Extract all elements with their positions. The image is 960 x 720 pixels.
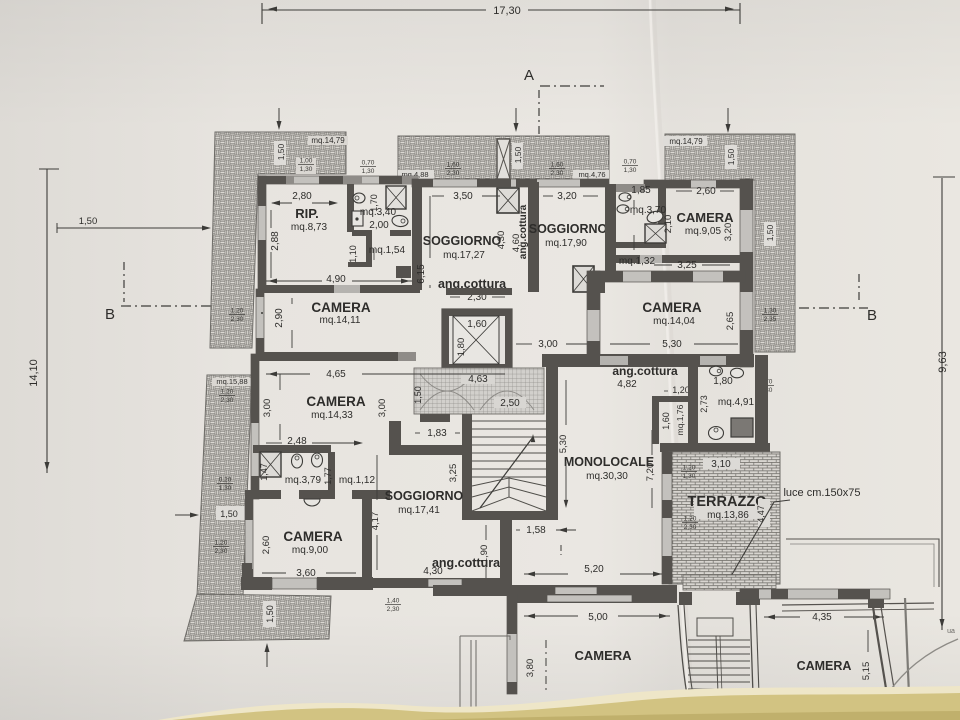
- svg-text:ang.cottura: ang.cottura: [612, 364, 678, 378]
- svg-text:B: B: [105, 306, 115, 323]
- svg-text:mq.13,86: mq.13,86: [707, 510, 749, 521]
- svg-text:mq.9,05: mq.9,05: [685, 226, 722, 237]
- svg-text:5,30: 5,30: [558, 435, 569, 454]
- svg-text:CAMERA: CAMERA: [306, 394, 365, 409]
- svg-text:1,90: 1,90: [479, 545, 490, 564]
- svg-text:1,30: 1,30: [300, 166, 313, 173]
- svg-text:luce cm.150x75: luce cm.150x75: [783, 487, 860, 499]
- svg-text:1,80: 1,80: [456, 338, 467, 357]
- svg-text:mq.3,79: mq.3,79: [285, 475, 322, 486]
- svg-text:1,50: 1,50: [513, 146, 523, 163]
- svg-text:2,30: 2,30: [447, 170, 460, 177]
- svg-text:1,20: 1,20: [215, 540, 228, 547]
- svg-text:mq.14,79: mq.14,79: [669, 137, 703, 146]
- svg-text:mq.17,27: mq.17,27: [443, 250, 485, 261]
- svg-text:A: A: [524, 67, 534, 84]
- svg-text:mq.14,79: mq.14,79: [311, 136, 345, 145]
- svg-text:4,35: 4,35: [812, 612, 832, 623]
- svg-text:mq.4,76: mq.4,76: [578, 170, 605, 179]
- svg-text:mq.15,88: mq.15,88: [216, 377, 247, 386]
- svg-text:mq.14,04: mq.14,04: [653, 316, 695, 327]
- svg-text:1,30: 1,30: [683, 473, 696, 480]
- svg-text:4,30: 4,30: [496, 231, 507, 250]
- svg-text:1,20: 1,20: [231, 308, 244, 315]
- svg-text:mq.3,70: mq.3,70: [630, 205, 667, 216]
- svg-text:1,60: 1,60: [661, 412, 671, 430]
- svg-text:1,10: 1,10: [348, 245, 358, 263]
- svg-text:2,30: 2,30: [551, 170, 564, 177]
- svg-text:1,58: 1,58: [526, 525, 546, 536]
- svg-text:1,30: 1,30: [219, 485, 232, 492]
- svg-text:1,20: 1,20: [683, 465, 696, 472]
- svg-text:1,80: 1,80: [713, 376, 733, 387]
- svg-text:2,30: 2,30: [231, 316, 244, 323]
- svg-text:mq.1,76: mq.1,76: [675, 404, 685, 435]
- svg-text:2,73: 2,73: [699, 395, 709, 413]
- svg-text:mq.1,12: mq.1,12: [339, 475, 376, 486]
- svg-text:5,20: 5,20: [584, 564, 604, 575]
- svg-text:2,90: 2,90: [274, 308, 285, 328]
- svg-text:1,20: 1,20: [684, 516, 697, 523]
- svg-text:1,77: 1,77: [323, 467, 333, 485]
- svg-text:1,30: 1,30: [764, 308, 777, 315]
- svg-text:1,50: 1,50: [79, 216, 98, 227]
- svg-text:3,20: 3,20: [723, 223, 734, 242]
- svg-text:2,30: 2,30: [684, 524, 697, 531]
- svg-text:RIP.: RIP.: [295, 206, 319, 221]
- svg-text:mq.1,54: mq.1,54: [369, 245, 406, 256]
- svg-text:3,00: 3,00: [262, 399, 273, 418]
- svg-text:2,80: 2,80: [292, 191, 312, 202]
- svg-text:5,15: 5,15: [861, 662, 872, 681]
- svg-text:CAMERA: CAMERA: [797, 659, 852, 673]
- svg-text:1,50: 1,50: [220, 509, 238, 519]
- svg-text:2,30: 2,30: [215, 548, 228, 555]
- svg-text:1,50: 1,50: [726, 148, 736, 165]
- svg-text:4,60: 4,60: [511, 234, 522, 253]
- svg-text:3,00: 3,00: [377, 399, 388, 418]
- svg-text:3,10: 3,10: [711, 459, 731, 470]
- svg-text:4,90: 4,90: [326, 274, 346, 285]
- svg-text:3,00: 3,00: [538, 339, 558, 350]
- svg-text:17,30: 17,30: [493, 5, 521, 17]
- svg-text:1,40: 1,40: [387, 598, 400, 605]
- svg-text:CAMERA: CAMERA: [283, 529, 342, 544]
- svg-text:mq.1,32: mq.1,32: [619, 256, 656, 267]
- svg-text:4,65: 4,65: [326, 369, 346, 380]
- svg-text:1,00: 1,00: [300, 158, 313, 165]
- svg-text:0,70: 0,70: [624, 159, 637, 166]
- svg-text:mq.17,90: mq.17,90: [545, 238, 587, 249]
- svg-text:B: B: [867, 307, 877, 324]
- svg-text:1,60: 1,60: [447, 162, 460, 169]
- svg-text:mq.4,91: mq.4,91: [718, 397, 755, 408]
- svg-text:6,15: 6,15: [416, 264, 427, 284]
- svg-text:2,60: 2,60: [696, 186, 716, 197]
- svg-text:mq.8,73: mq.8,73: [291, 222, 328, 233]
- svg-text:1,60: 1,60: [467, 319, 487, 330]
- svg-text:5,00: 5,00: [588, 612, 608, 623]
- svg-text:2,50: 2,50: [500, 398, 520, 409]
- svg-text:SOGGIORNO: SOGGIORNO: [385, 489, 464, 503]
- svg-text:3,20: 3,20: [557, 191, 577, 202]
- svg-text:3,60: 3,60: [296, 568, 316, 579]
- svg-text:0,20: 0,20: [219, 477, 232, 484]
- svg-text:1,50: 1,50: [765, 224, 775, 241]
- svg-text:ua: ua: [947, 628, 955, 635]
- svg-text:1,50: 1,50: [413, 386, 423, 404]
- svg-text:2,30: 2,30: [221, 397, 234, 404]
- svg-text:3,50: 3,50: [453, 191, 473, 202]
- svg-text:1,60: 1,60: [551, 162, 564, 169]
- svg-text:1,47: 1,47: [259, 463, 269, 481]
- svg-text:14,10: 14,10: [28, 359, 40, 387]
- svg-text:CAMERA: CAMERA: [311, 300, 370, 315]
- svg-text:2,00: 2,00: [369, 220, 389, 231]
- svg-text:1,20: 1,20: [672, 385, 690, 395]
- svg-text:4,47: 4,47: [756, 505, 766, 523]
- svg-text:3,25: 3,25: [448, 464, 459, 483]
- svg-text:1,20: 1,20: [221, 389, 234, 396]
- svg-text:TERRAZZO: TERRAZZO: [688, 494, 767, 510]
- svg-text:4,30: 4,30: [423, 566, 443, 577]
- svg-text:3,80: 3,80: [525, 659, 536, 678]
- svg-text:1,85: 1,85: [631, 185, 651, 196]
- svg-text:1,50: 1,50: [276, 143, 286, 160]
- svg-text:3,25: 3,25: [677, 260, 697, 271]
- svg-text:CAMERA: CAMERA: [676, 210, 734, 225]
- svg-text:5,30: 5,30: [662, 339, 682, 350]
- svg-text:1,70: 1,70: [369, 194, 379, 212]
- svg-text:mq.17,41: mq.17,41: [398, 505, 440, 516]
- svg-text:9,63: 9,63: [937, 351, 949, 372]
- svg-text:SOGGIORNO: SOGGIORNO: [423, 234, 502, 248]
- svg-text:1,83: 1,83: [427, 428, 447, 439]
- svg-text:CAMERA: CAMERA: [574, 648, 632, 663]
- svg-text:2,60: 2,60: [261, 536, 272, 555]
- svg-text:2,65: 2,65: [725, 312, 736, 331]
- svg-text:mq.14,11: mq.14,11: [320, 315, 361, 326]
- svg-text:SOGGIORNO: SOGGIORNO: [529, 222, 608, 236]
- svg-text:MONOLOCALE: MONOLOCALE: [564, 455, 654, 469]
- svg-text:4,82: 4,82: [617, 379, 637, 390]
- svg-text:2,35: 2,35: [764, 316, 777, 323]
- svg-text:mq.9,00: mq.9,00: [292, 545, 329, 556]
- svg-text:7,20: 7,20: [645, 463, 656, 482]
- svg-text:mq.30,30: mq.30,30: [586, 471, 628, 482]
- svg-text:2,88: 2,88: [270, 231, 281, 251]
- svg-text:CAMERA: CAMERA: [642, 300, 701, 315]
- svg-text:0,70: 0,70: [362, 160, 375, 167]
- svg-text:mq.14,33: mq.14,33: [311, 410, 353, 421]
- svg-text:2,10: 2,10: [663, 215, 674, 234]
- svg-text:1,30: 1,30: [624, 167, 637, 174]
- svg-text:1,50: 1,50: [265, 605, 275, 623]
- svg-text:4,63: 4,63: [468, 374, 488, 385]
- svg-text:2,30: 2,30: [387, 606, 400, 613]
- svg-text:1,30: 1,30: [362, 168, 375, 175]
